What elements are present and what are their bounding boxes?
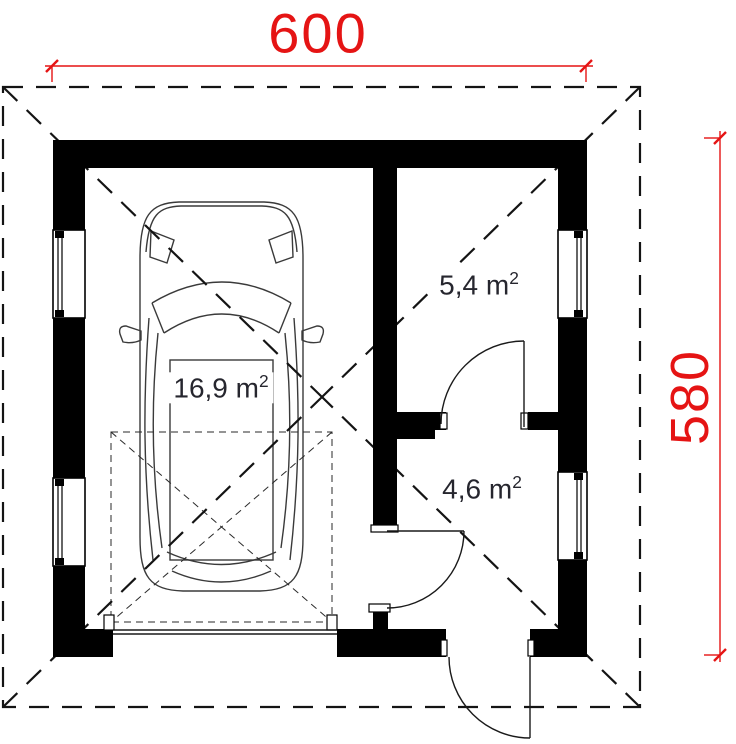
wall-interior-vertical <box>373 168 397 531</box>
wall-right <box>558 140 587 657</box>
wall-top <box>53 140 587 168</box>
car-mirror-left <box>120 326 141 343</box>
room-area-label-lower-right: 4,6 m2 <box>437 473 527 504</box>
door-garage-to-lower-room <box>387 531 464 608</box>
area-value: 5,4 m <box>439 269 509 300</box>
area-value: 16,9 m <box>173 372 259 403</box>
room-area-label-upper-right: 5,4 m2 <box>434 269 524 300</box>
window-left-lower <box>53 478 85 566</box>
area-superscript: 2 <box>509 268 519 288</box>
room-area-label-garage: 16,9 m2 <box>168 372 273 403</box>
floor-plan-drawing <box>0 0 736 744</box>
area-superscript: 2 <box>259 371 269 391</box>
wall-bottom-middle <box>337 629 446 657</box>
car-headlight-right <box>269 231 293 263</box>
dimension-height-label: 580 <box>659 349 721 445</box>
hip-roof-lines <box>3 87 640 707</box>
area-superscript: 2 <box>512 472 522 492</box>
wall-door-stub <box>373 611 388 629</box>
wall-bottom-right <box>530 629 587 657</box>
car-headlight-left <box>150 231 174 263</box>
window-right-upper <box>558 230 587 318</box>
dimension-width-label: 600 <box>268 1 367 66</box>
window-left-upper <box>53 230 85 318</box>
door-between-right-rooms <box>441 341 524 427</box>
area-value: 4,6 m <box>442 473 512 504</box>
wall-left <box>53 140 85 657</box>
door-jambs <box>104 413 534 656</box>
wall-interior-horizontal-left <box>395 412 446 430</box>
floor-plan-canvas: 600 580 16,9 m2 5,4 m2 4,6 m2 <box>0 0 736 744</box>
wall-bottom-left <box>53 629 113 657</box>
wall-interior-horizontal-right <box>528 412 558 430</box>
parking-clearance-outline <box>111 432 332 622</box>
garage-door-opening <box>113 630 337 634</box>
car-mirror-right <box>302 326 323 343</box>
window-right-lower <box>558 472 587 560</box>
door-exterior-bottom <box>449 657 530 738</box>
